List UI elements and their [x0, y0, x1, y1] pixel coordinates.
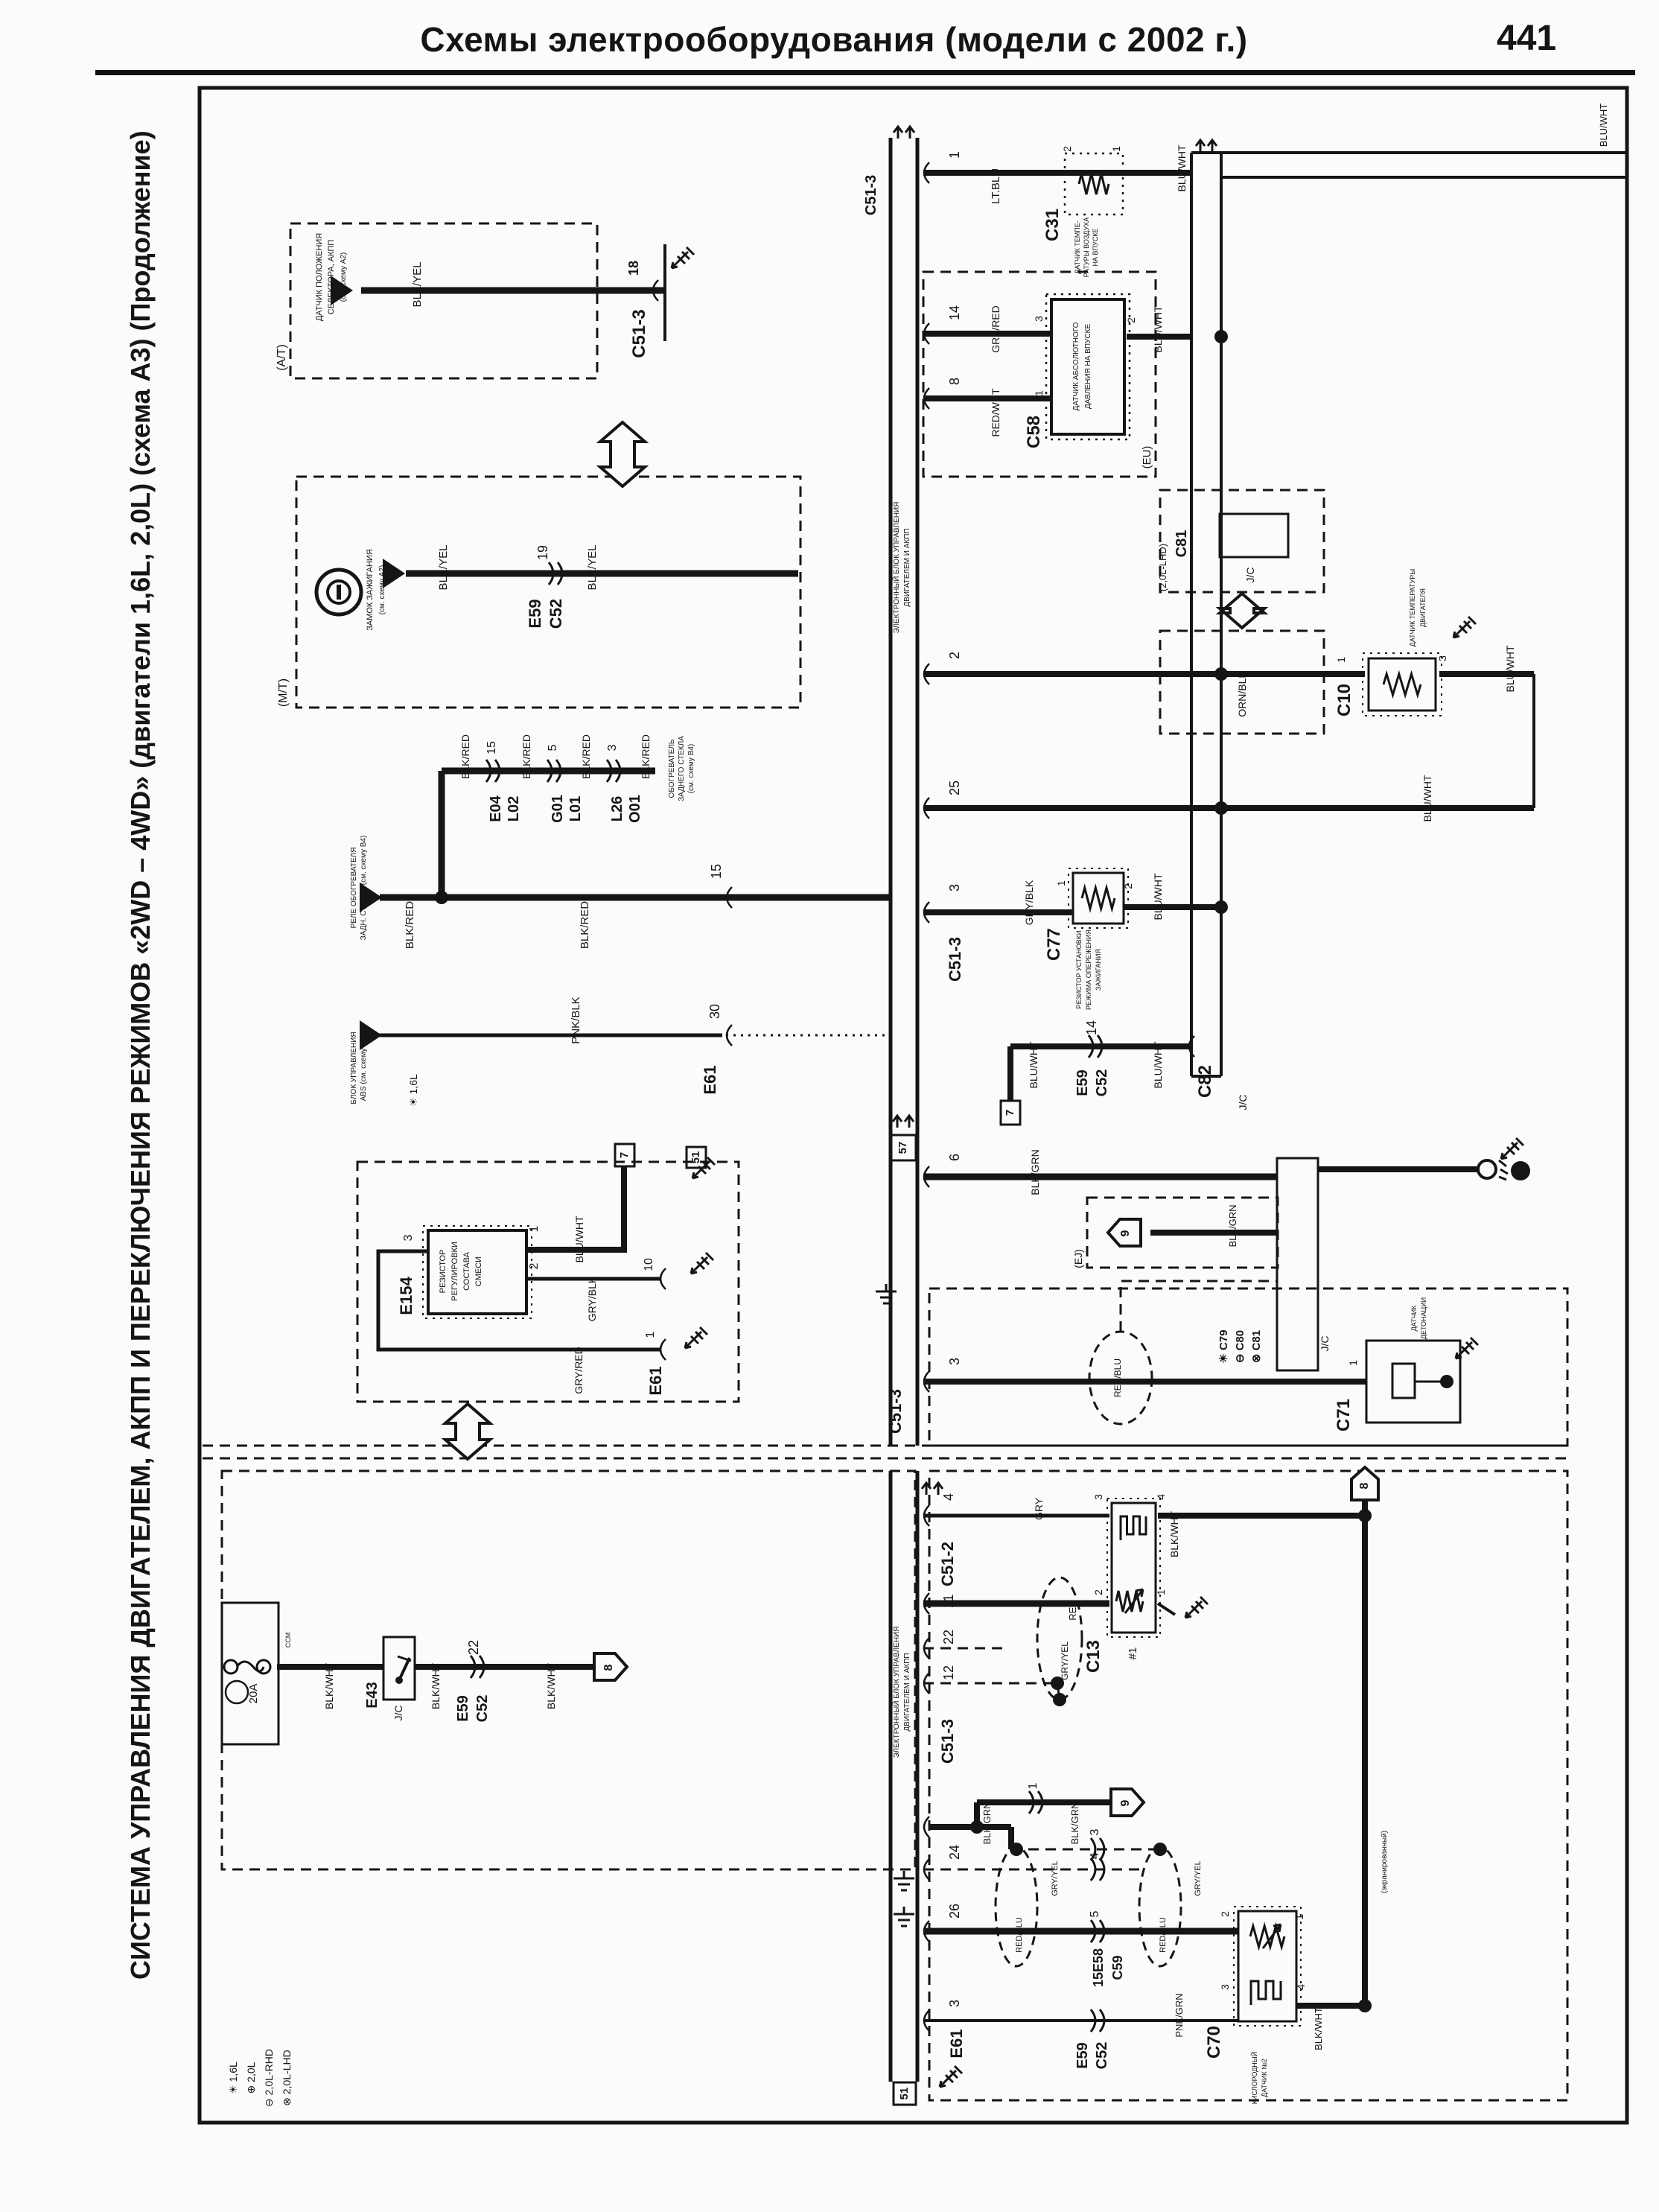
label: BLU/WHT	[1176, 144, 1188, 191]
legend-item: ⊗ 2,0L-LHD	[281, 2050, 293, 2106]
dashed-region	[929, 1288, 1567, 1446]
pin-bracket	[660, 1268, 666, 1289]
label: РЕЖИМА ОПЕРЕЖЕНИЯ	[1085, 929, 1092, 1010]
label: ДВИГАТЕЛЕМ И АКПП	[903, 1653, 911, 1731]
label: J/C	[1237, 1095, 1249, 1110]
label: 2	[528, 1262, 541, 1269]
chassis-ground-icon	[940, 2066, 962, 2087]
label: E61	[646, 1366, 665, 1395]
junction-dot	[1153, 1843, 1167, 1856]
label: C58	[1024, 416, 1044, 448]
label: ДАТЧИК	[1410, 1305, 1418, 1331]
label: 1	[1293, 1914, 1305, 1920]
label: E43	[364, 1682, 380, 1709]
wiring-diagram: ДАТЧИК ПОЛОЖЕНИЯСЕЛЕКТОРА, АКПП(см. схем…	[0, 0, 1659, 2212]
piezo-element	[1392, 1364, 1415, 1398]
label: BLK/GRN	[1029, 1149, 1041, 1195]
label: (2,0L-LHD)	[1157, 544, 1168, 591]
legend-item: ⊖ 2,0L-RHD	[263, 2049, 275, 2107]
label: E59	[1074, 1070, 1091, 1096]
label: 2	[1219, 1911, 1231, 1917]
label: 1	[644, 1331, 657, 1338]
label: 15	[485, 741, 498, 754]
label: 22	[466, 1640, 481, 1655]
label: 3	[947, 884, 962, 892]
label: 1	[1110, 146, 1122, 152]
label: 15	[709, 864, 724, 879]
sensor-arrow	[360, 1020, 382, 1050]
label: BLK/WHT	[1313, 2007, 1324, 2050]
ground-ring-terminal	[1478, 1160, 1496, 1178]
label: O01	[627, 795, 643, 823]
resistor-zigzag	[1383, 674, 1421, 695]
label: ДВИГАТЕЛЯ	[1419, 588, 1427, 627]
label: (см. схему В4)	[687, 744, 695, 794]
label: L26	[609, 796, 625, 821]
label: GRY/YEL	[1051, 1860, 1060, 1896]
label: ДАВЛЕНИЯ НА ВПУСКЕ	[1084, 324, 1092, 410]
label: ЭЛЕКТРОННЫЙ БЛОК УПРАВЛЕНИЯ	[891, 502, 901, 634]
label: ДАТЧИК ПОЛОЖЕНИЯ	[315, 233, 324, 322]
label: 24	[947, 1845, 962, 1860]
label: (EU)	[1141, 446, 1153, 469]
label: 3	[1436, 655, 1448, 661]
label: РЕЗИСТОР УСТАНОВКИ	[1075, 931, 1083, 1009]
label: C51-3	[863, 175, 879, 215]
label: 4	[941, 1493, 956, 1501]
label: 2	[947, 652, 962, 659]
label: RED/WHT	[990, 388, 1002, 437]
label: E04	[488, 795, 504, 821]
label: СОСТАВА	[462, 1251, 471, 1290]
chassis-ground-icon	[1501, 1138, 1523, 1159]
marker-box-number: 51	[690, 1151, 702, 1164]
label: (А/Т)	[276, 344, 288, 371]
label: E61	[701, 1065, 719, 1094]
label: BLK/YEL	[411, 262, 424, 308]
label: CCM	[284, 1633, 292, 1648]
label: C70	[1204, 2026, 1224, 2059]
label: (EJ)	[1072, 1249, 1084, 1268]
junction-switch	[399, 1658, 410, 1680]
label: РЕГУЛИРОВКИ	[450, 1242, 459, 1301]
label: ЗАДНЕГО СТЕКЛА	[678, 736, 686, 801]
label: GRY/YEL	[1194, 1860, 1203, 1896]
label: 1	[1055, 880, 1067, 886]
label: J/C	[1319, 1336, 1331, 1352]
label: PNK/GRN	[1174, 1993, 1185, 2037]
marker-box-number: 7	[1004, 1110, 1016, 1116]
component-box	[1234, 1907, 1301, 2026]
label: ⊗ C81	[1250, 1330, 1263, 1363]
label: 1	[1033, 390, 1045, 396]
junction-dot	[1358, 1999, 1372, 2012]
label: C13	[1083, 1640, 1104, 1673]
label: 1	[1027, 1782, 1039, 1789]
resistor-zigzag	[1082, 888, 1115, 909]
label: BLU/WHT	[1421, 775, 1433, 821]
label: C51-3	[629, 309, 649, 357]
bidirectional-arrow-icon	[1220, 594, 1264, 628]
label: BLU/WHT	[1028, 1041, 1039, 1088]
heater-element	[1121, 1516, 1146, 1540]
label: LT.BLU	[990, 168, 1002, 204]
label: 8	[947, 378, 962, 385]
label: 11	[941, 1595, 956, 1609]
label: ДЕТОНАЦИИ	[1420, 1297, 1427, 1339]
ground-hatch	[1499, 1160, 1508, 1180]
label: 22	[941, 1630, 956, 1644]
label: BLU/WHT	[1598, 104, 1609, 147]
label: PNK/BLK	[570, 997, 582, 1043]
label: C10	[1334, 684, 1354, 716]
continuation-arrow-number: 8	[1358, 1482, 1371, 1489]
label: РАТУРЫ ВОЗДУХА	[1083, 217, 1090, 277]
label: E61	[947, 2029, 966, 2058]
label: BLK/WHT	[1168, 1510, 1180, 1557]
label: BLK/RED	[520, 734, 532, 779]
label: 25	[947, 781, 962, 795]
component-box	[1277, 1158, 1318, 1370]
label: C31	[1042, 209, 1063, 241]
label: BLK/RED	[579, 901, 591, 949]
chassis-ground-icon	[691, 1253, 713, 1274]
continuation-arrows-icon	[1196, 140, 1217, 152]
label: СМЕСИ	[474, 1256, 483, 1286]
label: ДАТЧИК ТЕМПЕРАТУРЫ	[1409, 569, 1416, 646]
label: C52	[1094, 2042, 1110, 2070]
label: 3	[1033, 316, 1045, 322]
label: C81	[1174, 530, 1190, 558]
label: GRY/BLK	[586, 1276, 598, 1321]
label: 5	[547, 744, 559, 751]
sensor-arrow	[360, 883, 382, 912]
label: 1	[1155, 1589, 1167, 1595]
junction-dot	[1358, 1509, 1372, 1522]
chassis-ground-icon	[685, 1327, 707, 1348]
label: 3	[1219, 1984, 1231, 1990]
wire	[1158, 1604, 1175, 1615]
junction-dot	[1214, 330, 1228, 343]
label: GRY	[1033, 1497, 1045, 1520]
heater-element	[1251, 1981, 1281, 2005]
label: КИСЛОРОДНЫЙ	[1250, 2052, 1258, 2104]
label: 30	[707, 1004, 722, 1019]
label: BLK/GRN	[1069, 1802, 1080, 1844]
label: GRY/YEL	[1060, 1641, 1070, 1680]
manual-page: Схемы электрооборудования (модели с 2002…	[0, 0, 1659, 2212]
continuation-arrows-icon	[893, 1116, 914, 1128]
label: 2	[1125, 317, 1137, 323]
label: BLK/YEL	[437, 545, 450, 591]
pin-bracket	[727, 1025, 732, 1046]
label: 1	[1335, 657, 1347, 663]
bidirectional-arrow-icon	[445, 1404, 490, 1459]
label: #1	[1127, 1647, 1139, 1660]
label: E59	[526, 599, 544, 628]
label: ДАТЧИК №2	[1261, 2059, 1268, 2097]
label: ДВИГАТЕЛЕМ И АКПП	[903, 528, 911, 606]
label: RED/BLU	[1015, 1917, 1024, 1953]
wire	[378, 1251, 661, 1350]
label: RED/BLU	[1159, 1917, 1168, 1953]
label: J/C	[1244, 568, 1256, 583]
label: C82	[1195, 1065, 1215, 1098]
label: BLK/RED	[580, 734, 592, 779]
legend-item: ⊕ 2,0L	[245, 2062, 257, 2094]
label: 26	[947, 1904, 962, 1919]
label: BLK/RED	[640, 734, 652, 779]
label: ЗАМОК ЗАЖИГАНИЯ	[366, 549, 375, 631]
label: GRY/BLK	[1023, 880, 1035, 925]
label: L01	[567, 796, 584, 821]
continuation-arrow-number: 9	[1119, 1799, 1132, 1806]
label: БЛОК УПРАВЛЕНИЯ	[350, 1032, 358, 1104]
label: РЕЛЕ ОБОГРЕВАТЕЛЯ	[350, 848, 358, 929]
label: RED	[1067, 1600, 1078, 1620]
label: BLK/WHT	[545, 1662, 557, 1709]
label: РЕЗИСТОР	[439, 1250, 448, 1294]
label: ДАТЧИК ТЕМПЕ-	[1074, 220, 1081, 274]
label: BLK/RED	[459, 734, 471, 779]
junction-dot	[435, 891, 448, 904]
fuse-icon	[237, 1662, 264, 1671]
continuation-arrow-number: 9	[1119, 1230, 1132, 1236]
label: C51-3	[946, 937, 964, 982]
label: 18	[626, 261, 641, 276]
label: НА ВПУСКЕ	[1092, 229, 1099, 267]
pin-bracket	[660, 1339, 666, 1360]
marker-box-number: 57	[897, 1142, 909, 1154]
label: C51-2	[938, 1542, 957, 1586]
label: E154	[397, 1277, 415, 1315]
label: RED/BLU	[1112, 1358, 1123, 1397]
label: ЭЛЕКТРОННЫЙ БЛОК УПРАВЛЕНИЯ	[891, 1627, 901, 1758]
chassis-ground-icon	[672, 247, 694, 268]
label: 10	[643, 1258, 655, 1271]
label: 3	[947, 1358, 962, 1365]
label: E59	[455, 1695, 471, 1722]
continuation-arrows-icon	[922, 1483, 943, 1495]
junction-dot	[1053, 1693, 1066, 1706]
junction-dot	[1214, 667, 1228, 681]
label: J/C	[392, 1706, 404, 1721]
ground-icon	[894, 1871, 914, 1890]
label: 3	[1092, 1494, 1104, 1500]
label: 3	[947, 2000, 962, 2007]
label: C59	[1110, 1955, 1125, 1980]
junction-dot	[1010, 1843, 1023, 1856]
label: 6	[947, 1154, 962, 1161]
marker-box-number: 51	[898, 2088, 911, 2100]
fuse-number-ring	[226, 1681, 248, 1703]
label: 12	[941, 1665, 956, 1680]
label: 4	[1295, 1984, 1307, 1990]
label: ЗАЖИГАНИЯ	[1095, 949, 1102, 991]
resistor-zigzag	[1079, 174, 1109, 194]
marker-box-number: 7	[618, 1152, 631, 1158]
label: C52	[1094, 1070, 1110, 1097]
chassis-ground-icon	[1453, 617, 1476, 638]
label: C52	[474, 1695, 491, 1723]
label: C51-3	[886, 1389, 905, 1434]
label: 5	[1089, 1910, 1101, 1917]
label: BLU/WHT	[1152, 1041, 1164, 1088]
wire	[923, 1683, 1060, 1700]
label: 3	[1089, 1828, 1101, 1835]
component-box	[1238, 1911, 1296, 2021]
label: BLU/WHT	[1152, 305, 1164, 352]
label: 1	[947, 151, 962, 159]
junction-dot	[1214, 900, 1228, 914]
label: 1	[528, 1225, 541, 1232]
label: ORN/BLK	[1236, 671, 1248, 717]
label: C52	[547, 599, 565, 629]
label: C77	[1044, 928, 1064, 961]
label: 2	[1061, 146, 1073, 152]
label: (экранированный)	[1381, 1831, 1389, 1893]
sensor-arrow	[383, 559, 405, 588]
label: L02	[506, 796, 522, 821]
continuation-arrows-icon	[894, 127, 914, 139]
ground-icon	[876, 1284, 897, 1303]
label: 3	[606, 744, 619, 751]
label: E59	[1074, 2042, 1091, 2069]
component-box	[1220, 514, 1288, 557]
label: (М/Т)	[277, 678, 290, 707]
label: BLU/WHT	[1504, 645, 1516, 692]
label: BLK/WHT	[430, 1662, 442, 1709]
ground-icon	[894, 1907, 914, 1926]
label: G01	[550, 795, 566, 823]
label: BLU/WHT	[1152, 873, 1164, 920]
label: ДАТЧИК АБСОЛЮТНОГО	[1072, 322, 1080, 410]
component-box	[383, 1637, 415, 1700]
label: 14	[947, 305, 962, 320]
junction-dot	[1214, 801, 1228, 815]
label: GRY/RED	[990, 305, 1002, 353]
label: 4	[1155, 1494, 1167, 1500]
label: ☀ C79	[1217, 1329, 1230, 1363]
continuation-arrow-number: 8	[602, 1664, 615, 1671]
label: ⊖ C80	[1234, 1330, 1246, 1363]
label: 2	[1092, 1589, 1104, 1595]
label: ОБОГРЕВАТЕЛЬ	[668, 739, 676, 798]
label: BLU/WHT	[573, 1215, 585, 1262]
variant-marker	[1511, 1161, 1530, 1180]
chassis-ground-icon	[1185, 1597, 1208, 1618]
label: BLK/WHT	[323, 1662, 335, 1709]
label: 15E58	[1091, 1948, 1106, 1987]
legend-item: ☀ 1,6L	[227, 2062, 239, 2094]
label: 4	[1089, 1852, 1101, 1859]
label: BLK/GRN	[981, 1802, 993, 1844]
label: 3	[402, 1234, 415, 1241]
label: 19	[535, 545, 550, 560]
label: 1	[1347, 1360, 1359, 1366]
label: BLK/RED	[404, 901, 416, 949]
label: BLK/YEL	[586, 545, 599, 591]
fuse-icon	[224, 1660, 238, 1674]
label: C51-3	[938, 1719, 957, 1764]
label: 14	[1084, 1020, 1099, 1035]
label: ☀ 1,6L	[407, 1074, 419, 1107]
label: GRY/RED	[573, 1347, 585, 1394]
label: C71	[1334, 1399, 1354, 1431]
label: 20А	[247, 1684, 260, 1704]
label: 2	[1122, 883, 1134, 889]
dashed-region	[929, 1471, 1567, 2100]
label: BLK/GRN	[1227, 1204, 1238, 1247]
